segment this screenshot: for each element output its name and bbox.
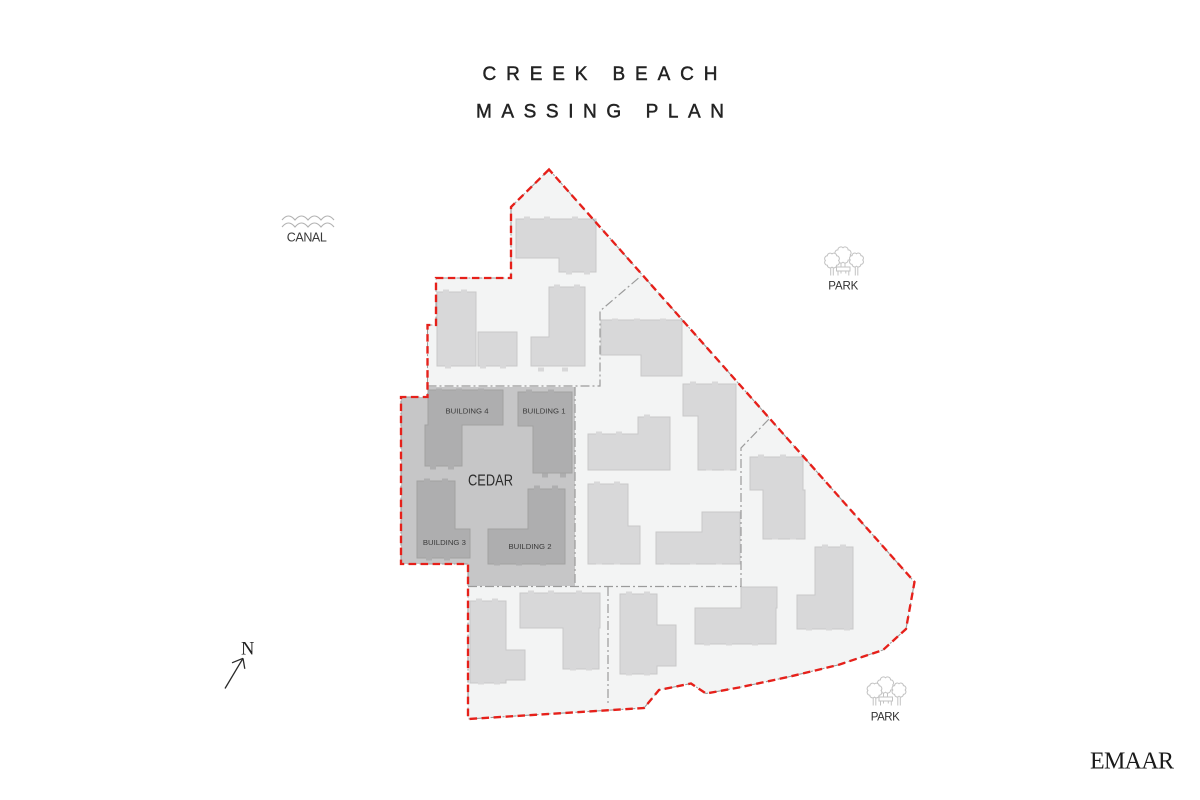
svg-text:CEDAR: CEDAR bbox=[468, 473, 513, 490]
svg-text:CANAL: CANAL bbox=[287, 231, 327, 245]
svg-text:N: N bbox=[241, 640, 254, 660]
svg-text:CREEK BEACH: CREEK BEACH bbox=[483, 64, 718, 85]
svg-text:EMAAR: EMAAR bbox=[1090, 749, 1174, 775]
svg-text:BUILDING 3: BUILDING 3 bbox=[423, 538, 466, 547]
svg-text:BUILDING 2: BUILDING 2 bbox=[509, 542, 552, 551]
svg-text:BUILDING 4: BUILDING 4 bbox=[446, 407, 489, 416]
svg-text:PARK: PARK bbox=[828, 281, 858, 293]
svg-text:PARK: PARK bbox=[871, 712, 900, 724]
svg-text:BUILDING 1: BUILDING 1 bbox=[523, 407, 566, 416]
